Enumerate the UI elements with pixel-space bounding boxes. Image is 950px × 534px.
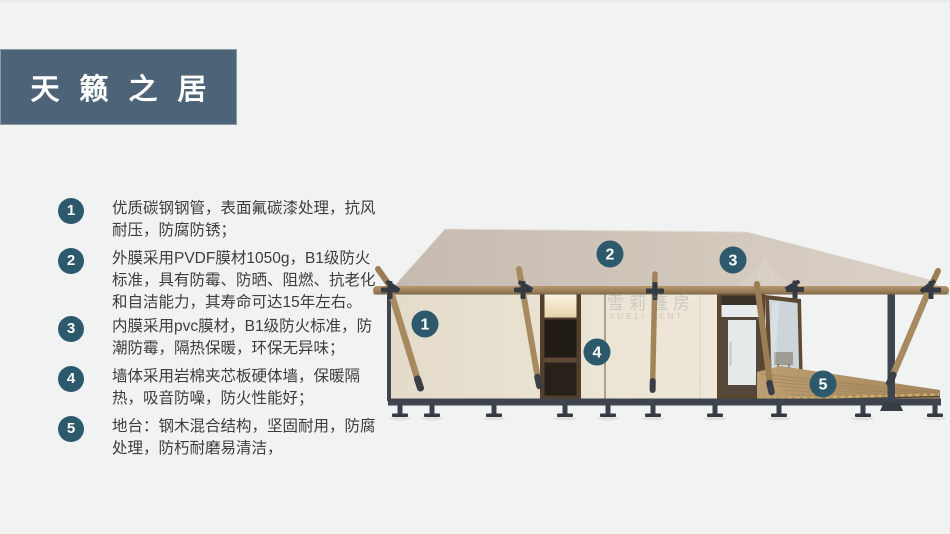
svg-text:3: 3	[729, 253, 738, 270]
feature-text: 地台：钢木混合结构，坚固耐用，防腐处理，防朽耐磨易清洁，	[112, 416, 382, 460]
callout-5: 5	[810, 371, 837, 398]
feature-item: 4 墙体采用岩棉夹芯板硬体墙，保暖隔热，吸音防噪，防火性能好；	[58, 366, 382, 410]
svg-text:4: 4	[593, 345, 602, 362]
page-title: 天籁之居	[10, 66, 226, 108]
feature-text: 墙体采用岩棉夹芯板硬体墙，保暖隔热，吸音防噪，防火性能好；	[112, 366, 382, 410]
interior-furniture	[774, 352, 793, 365]
feature-number-badge: 2	[58, 248, 84, 274]
svg-text:1: 1	[421, 317, 430, 334]
feature-number-badge: 5	[58, 416, 84, 442]
foot-plates	[392, 414, 943, 418]
tent-roof	[388, 229, 948, 293]
feature-item: 5 地台：钢木混合结构，坚固耐用，防腐处理，防朽耐磨易清洁，	[58, 416, 382, 460]
feature-text: 内膜采用pvc膜材，B1级防火标准，防潮防霉，隔热保暖，环保无异味；	[112, 316, 382, 360]
svg-text:2: 2	[606, 247, 615, 264]
callout-2: 2	[597, 241, 624, 268]
base-frame	[388, 399, 946, 421]
feature-number-badge: 1	[58, 198, 84, 224]
watermark-en: XUELI TENT	[609, 311, 684, 321]
entry-door	[540, 290, 581, 399]
wood-deck	[757, 366, 940, 401]
feature-number-badge: 4	[58, 366, 84, 392]
callout-3: 3	[720, 247, 747, 274]
feature-item: 1 优质碳钢钢管，表面氟碳漆处理，抗风耐压，防腐防锈；	[58, 198, 382, 242]
page-title-banner: 天籁之居	[0, 49, 237, 125]
tent-render: 雪莉篷房 XUELI TENT 1 2 3 4 5	[368, 197, 950, 437]
callout-4: 4	[584, 339, 611, 366]
callout-1: 1	[412, 311, 439, 338]
feature-text: 优质碳钢钢管，表面氟碳漆处理，抗风耐压，防腐防锈；	[112, 198, 382, 242]
corner-post	[387, 291, 391, 401]
feature-item: 3 内膜采用pvc膜材，B1级防火标准，防潮防霉，隔热保暖，环保无异味；	[58, 316, 382, 360]
feature-number-badge: 3	[58, 316, 84, 342]
svg-text:5: 5	[819, 377, 828, 394]
feature-item: 2 外膜采用PVDF膜材1050g，B1级防火标准，具有防霉、防晒、阻燃、抗老化…	[58, 248, 382, 314]
feature-text: 外膜采用PVDF膜材1050g，B1级防火标准，具有防霉、防晒、阻燃、抗老化和自…	[112, 248, 382, 314]
